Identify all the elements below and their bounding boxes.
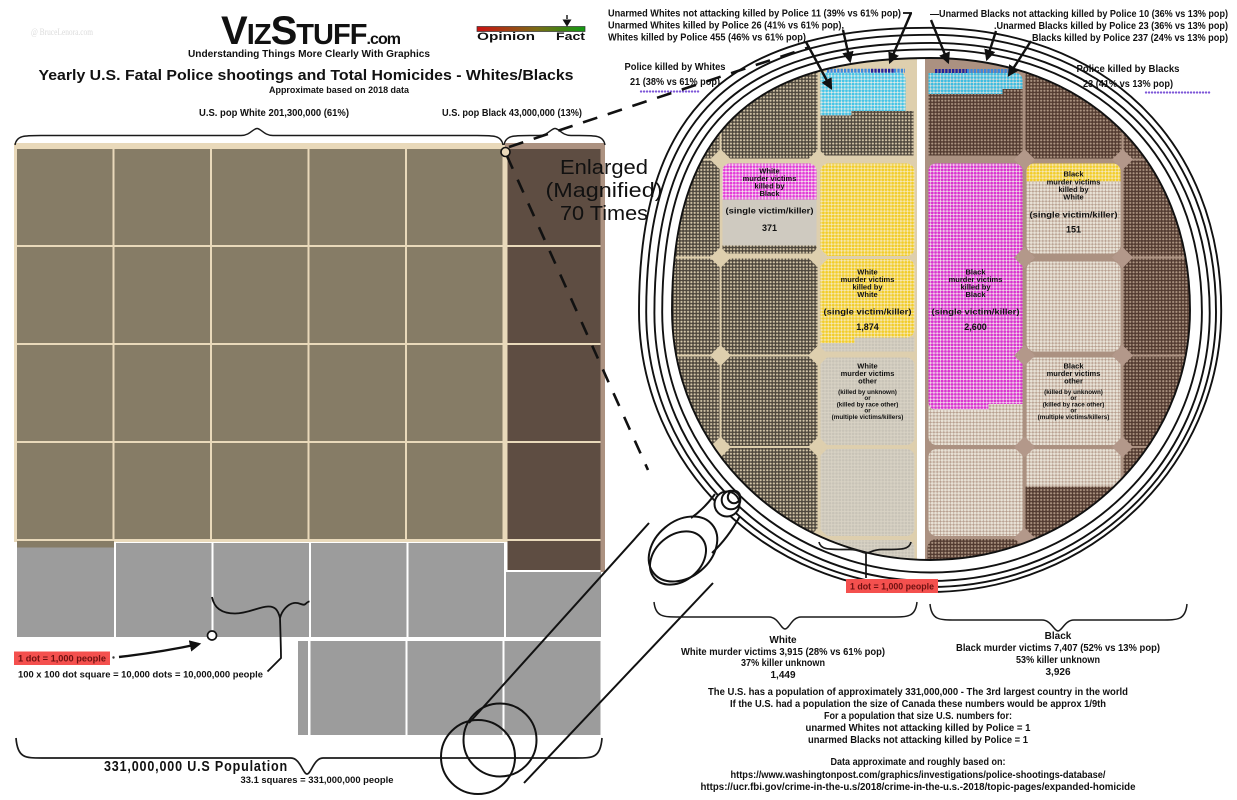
svg-text:(multiple victims/killers): (multiple victims/killers)	[1038, 414, 1110, 421]
svg-text:(single victim/killer): (single victim/killer)	[932, 307, 1020, 317]
svg-text:—Unarmed Blacks not attacking: —Unarmed Blacks not attacking killed by …	[930, 9, 1228, 20]
svg-text:(single victim/killer): (single victim/killer)	[726, 206, 814, 216]
svg-text:Black: Black	[1045, 631, 1072, 642]
svg-text:Understanding Things More Clea: Understanding Things More Clearly With G…	[188, 49, 430, 60]
svg-text:White: White	[769, 635, 797, 646]
svg-text:21 (38% vs 61% pop): 21 (38% vs 61% pop)	[630, 77, 720, 88]
svg-text:unarmed Blacks not attacking k: unarmed Blacks not attacking killed by P…	[808, 735, 1028, 746]
svg-text:(multiple victims/killers): (multiple victims/killers)	[832, 414, 904, 421]
svg-text:VIZSTUFF.com: VIZSTUFF.com	[221, 9, 401, 53]
svg-text:Unarmed Whites killed by Polic: Unarmed Whites killed by Police 26 (41% …	[608, 21, 844, 32]
svg-text:Opinion: Opinion	[477, 31, 535, 43]
svg-text:White: White	[1063, 193, 1083, 202]
svg-text:other: other	[1064, 377, 1083, 386]
svg-text:(single victim/killer): (single victim/killer)	[1030, 210, 1118, 220]
svg-text:https://www.washingtonpost.com: https://www.washingtonpost.com/graphics/…	[731, 770, 1106, 781]
svg-text:Whites killed by Police 455 (4: Whites killed by Police 455 (46% vs 61% …	[608, 33, 806, 44]
svg-text:151: 151	[1066, 225, 1081, 235]
svg-text:Black: Black	[965, 290, 986, 299]
svg-text:https://ucr.fbi.gov/crime-in-t: https://ucr.fbi.gov/crime-in-the-u.s/201…	[701, 782, 1136, 793]
svg-text:1 dot = 1,000 people: 1 dot = 1,000 people	[18, 654, 106, 665]
svg-text:1,874: 1,874	[856, 322, 879, 332]
svg-text:@ BruceLenora.com: @ BruceLenora.com	[31, 28, 93, 38]
svg-text:Data approximate and roughly b: Data approximate and roughly based on:	[831, 757, 1006, 768]
svg-text:Approximate based on 2018 data: Approximate based on 2018 data	[269, 85, 410, 96]
svg-text:37% killer unknown: 37% killer unknown	[741, 658, 825, 669]
svg-text:Enlarged: Enlarged	[560, 157, 648, 179]
svg-text:Blacks killed by Police 237 (2: Blacks killed by Police 237 (24% vs 13% …	[1032, 33, 1228, 44]
svg-text:371: 371	[762, 223, 777, 233]
svg-text:U.S. pop Black 43,000,000 (13%: U.S. pop Black 43,000,000 (13%)	[442, 108, 582, 119]
svg-text:The U.S. has a population of a: The U.S. has a population of approximate…	[708, 687, 1128, 698]
svg-text:(Magnified): (Magnified)	[546, 180, 663, 202]
svg-text:other: other	[858, 377, 877, 386]
svg-text:53% killer unknown: 53% killer unknown	[1016, 655, 1100, 666]
svg-text:White murder victims 3,915 (28: White murder victims 3,915 (28% vs 61% p…	[681, 647, 885, 658]
svg-text:Black: Black	[759, 189, 780, 198]
svg-text:.Unarmed Blacks killed by Poli: .Unarmed Blacks killed by Police 23 (36%…	[994, 21, 1228, 32]
svg-text:100 x 100 dot square = 10,000: 100 x 100 dot square = 10,000 dots = 10,…	[18, 670, 263, 681]
svg-text:For a population that size U.S: For a population that size U.S. numbers …	[824, 711, 1012, 722]
svg-text:33.1 squares = 331,000,000 peo: 33.1 squares = 331,000,000 people	[241, 775, 394, 786]
svg-text:(single victim/killer): (single victim/killer)	[824, 307, 912, 317]
svg-text:unarmed Whites not attacking k: unarmed Whites not attacking killed by P…	[806, 723, 1031, 734]
svg-text:U.S. pop White 201,300,000 (61: U.S. pop White 201,300,000 (61%)	[199, 108, 349, 119]
svg-text:3,926: 3,926	[1045, 667, 1070, 678]
svg-text:White: White	[857, 290, 877, 299]
svg-text:Yearly U.S. Fatal Police shoot: Yearly U.S. Fatal Police shootings and T…	[39, 67, 574, 84]
svg-text:331,000,000 U.S Population: 331,000,000 U.S Population	[104, 758, 288, 775]
svg-text:1 dot = 1,000 people: 1 dot = 1,000 people	[850, 582, 934, 593]
svg-text:Unarmed Whites not attacking k: Unarmed Whites not attacking killed by P…	[608, 9, 901, 20]
svg-text:2,600: 2,600	[964, 322, 987, 332]
svg-text:70 Times: 70 Times	[560, 203, 648, 225]
svg-text:If the U.S. had a population t: If the U.S. had a population the size of…	[730, 699, 1106, 710]
svg-text:1,449: 1,449	[770, 670, 795, 681]
svg-text:Police killed by Whites: Police killed by Whites	[625, 62, 726, 73]
svg-text:Fact: Fact	[556, 31, 585, 43]
svg-text:Black murder victims 7,407 (52: Black murder victims 7,407 (52% vs 13% p…	[956, 643, 1160, 654]
